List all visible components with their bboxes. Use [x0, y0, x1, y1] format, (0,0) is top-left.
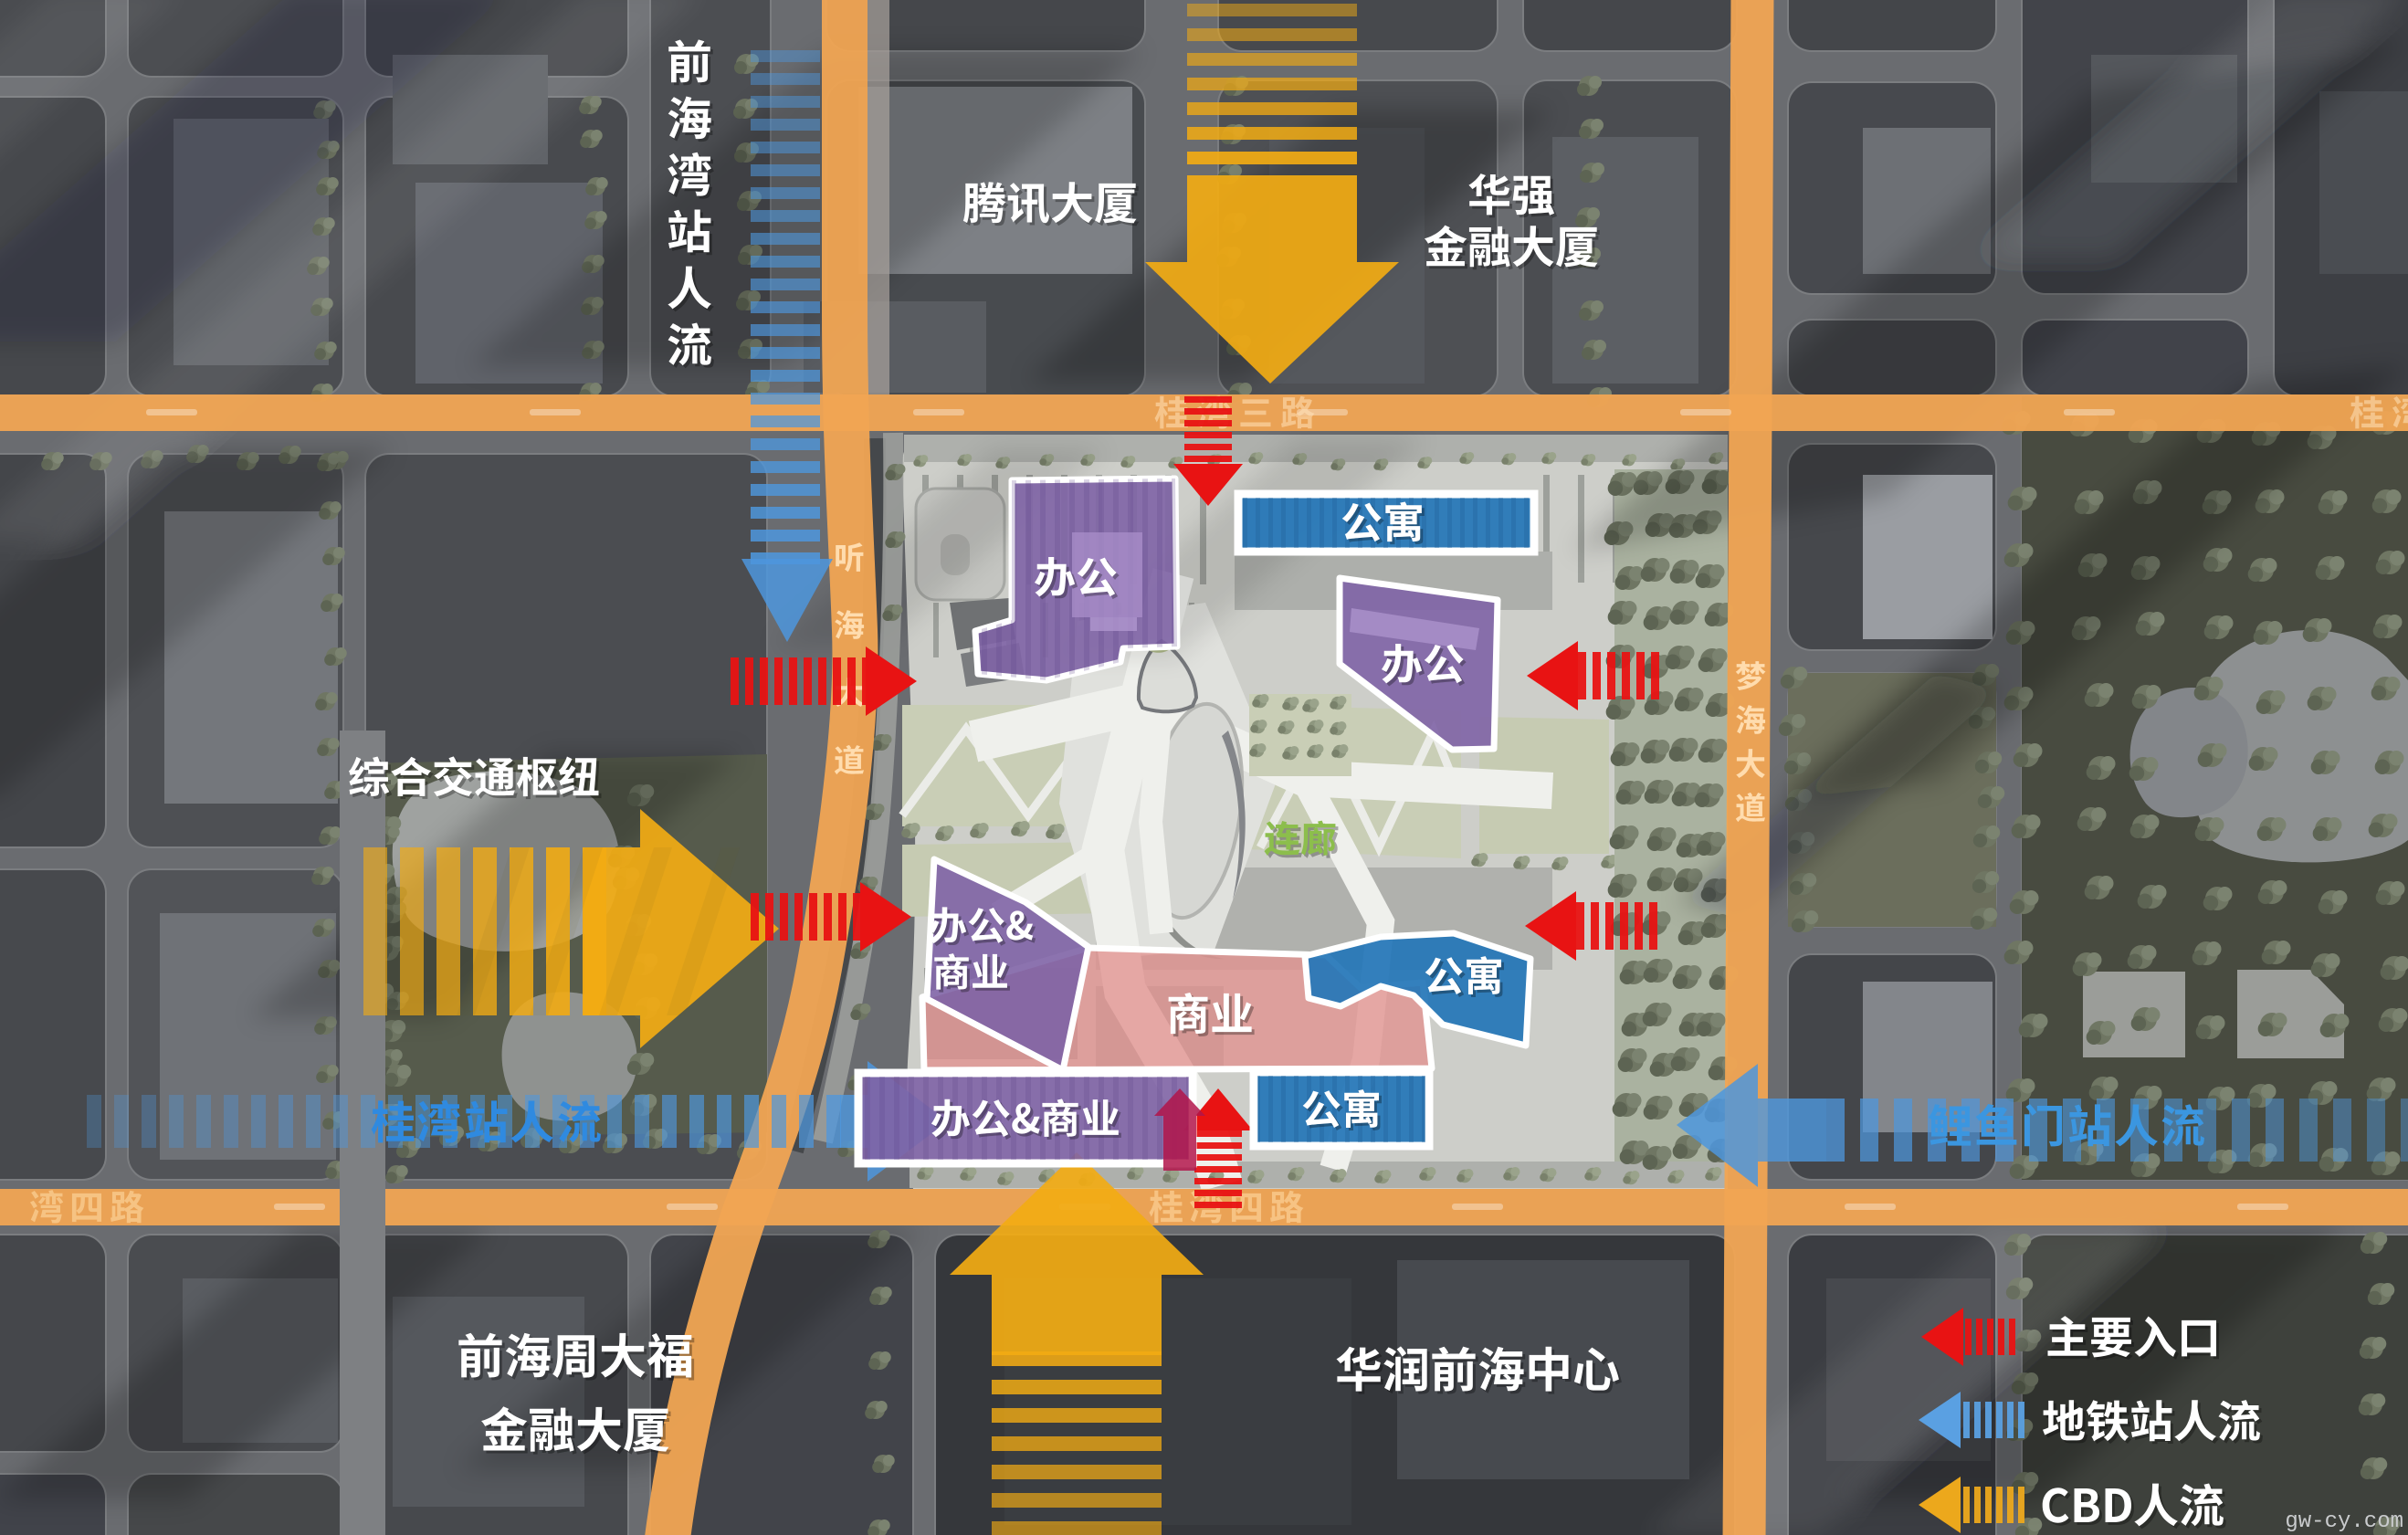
svg-text:gw-cy.com: gw-cy.com	[2285, 1509, 2403, 1534]
